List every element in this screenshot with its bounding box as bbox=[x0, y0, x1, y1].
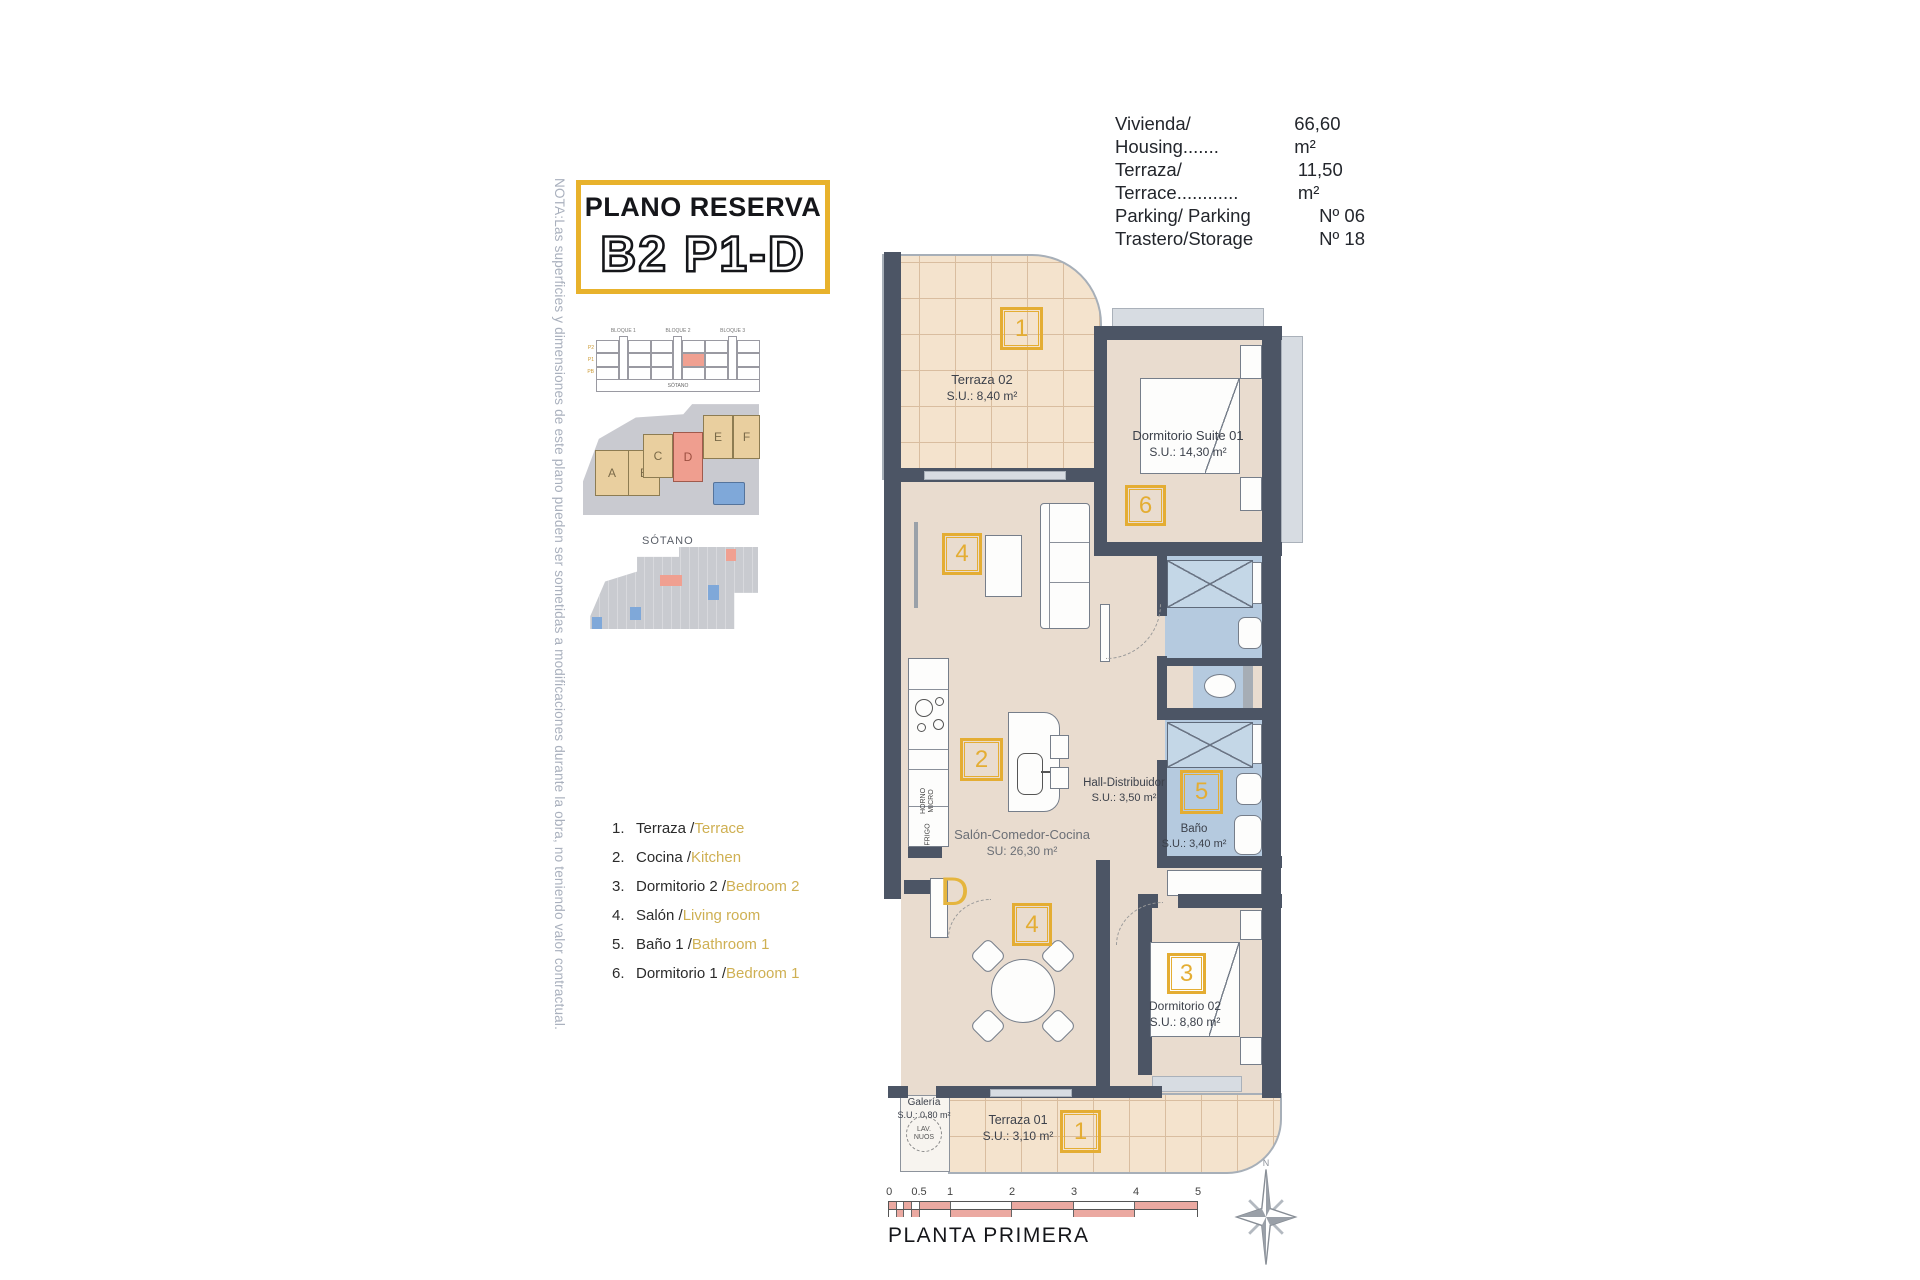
wall-suite-left bbox=[1094, 326, 1107, 556]
island-stool bbox=[1050, 767, 1069, 789]
site-unit-d-highlighted: D bbox=[673, 432, 703, 482]
basement-red-cell bbox=[726, 549, 736, 561]
exterior-gallery-band bbox=[1281, 336, 1303, 543]
compass-n-label: N bbox=[1226, 1158, 1306, 1168]
nightstand bbox=[1240, 1037, 1262, 1065]
highlighted-unit-cell bbox=[682, 353, 705, 366]
dining-table bbox=[991, 959, 1055, 1023]
cooktop-burner-large bbox=[915, 699, 933, 717]
stair-core bbox=[728, 336, 737, 380]
plan-title: B2 P1-D bbox=[600, 225, 806, 283]
basement-blue-cell bbox=[630, 607, 641, 620]
bath-sink bbox=[1238, 617, 1262, 649]
basement-label: SÓTANO bbox=[642, 535, 694, 547]
site-unit-a: A bbox=[595, 450, 629, 496]
scale-tick: 0 bbox=[886, 1186, 892, 1198]
wc-partition bbox=[1243, 666, 1253, 708]
label-hall: Hall-Distribuidor S.U.: 3,50 m² bbox=[1083, 776, 1165, 806]
island-stool bbox=[1050, 735, 1069, 759]
room-tag-bath: 5 bbox=[1180, 770, 1223, 814]
wall-left bbox=[884, 252, 901, 899]
wall-entry-stub bbox=[904, 880, 932, 894]
wall-dining-right bbox=[1096, 860, 1110, 1086]
basement-highlight-cell bbox=[660, 575, 682, 586]
scale-tick: 5 bbox=[1195, 1186, 1201, 1198]
compass-rose: N bbox=[1226, 1158, 1306, 1268]
scale-tick: 3 bbox=[1071, 1186, 1077, 1198]
info-label: Terraza/ Terrace............ bbox=[1115, 158, 1298, 204]
fridge-label: FRIGO bbox=[925, 820, 932, 850]
bath-fixture bbox=[1234, 815, 1262, 855]
wall-bath-bottom bbox=[1157, 856, 1282, 868]
wall-suite-bottom bbox=[1094, 542, 1282, 556]
wall-right-outer bbox=[1262, 326, 1281, 1098]
info-value: Nº 18 bbox=[1319, 227, 1365, 250]
site-unit-e: E bbox=[703, 415, 733, 459]
floor-caption: PLANTA PRIMERA bbox=[888, 1224, 1090, 1248]
sotano-band: SÓTANO bbox=[596, 380, 760, 392]
site-unit-c: C bbox=[643, 434, 673, 478]
shower-screen bbox=[1252, 724, 1262, 764]
info-row-housing: Vivienda/ Housing....... 66,60 m² bbox=[1115, 112, 1365, 158]
shower bbox=[1167, 722, 1253, 768]
info-row-terrace: Terraza/ Terrace............ 11,50 m² bbox=[1115, 158, 1365, 204]
nightstand bbox=[1240, 910, 1262, 940]
info-label: Trastero/Storage bbox=[1115, 227, 1253, 250]
title-block: PLANO RESERVA B2 P1-D bbox=[576, 180, 830, 294]
info-label: Parking/ Parking bbox=[1115, 204, 1251, 227]
cooktop-burner bbox=[935, 697, 944, 706]
legend-item-2: 2.Cocina / Kitchen bbox=[612, 849, 832, 878]
floorplan-sheet: NOTA:Las superficies y dimensiones de es… bbox=[0, 0, 1920, 1280]
room-tag-living: 4 bbox=[942, 533, 982, 575]
building-elevation-diagram: BLOQUE 1 BLOQUE 2 BLOQUE 3 P2 P1 PB SÓTA… bbox=[596, 328, 760, 404]
bloque-1-label: BLOQUE 1 bbox=[611, 328, 636, 336]
scale-bar-strip bbox=[888, 1201, 1198, 1217]
wall-wc-top bbox=[1165, 658, 1262, 666]
pool bbox=[713, 482, 745, 505]
basement-blue-cell bbox=[592, 617, 602, 629]
label-suite: Dormitorio Suite 01 S.U.: 14,30 m² bbox=[1132, 428, 1243, 460]
room-tag-dining: 4 bbox=[1012, 903, 1052, 946]
scale-tick: 1 bbox=[947, 1186, 953, 1198]
scale-tick: 2 bbox=[1009, 1186, 1015, 1198]
legend-item-3: 3.Dormitorio 2 / Bedroom 2 bbox=[612, 878, 832, 907]
plan-subtitle: PLANO RESERVA bbox=[585, 192, 822, 223]
room-tag-terraza02: 1 bbox=[1000, 307, 1043, 350]
site-unit-f: F bbox=[733, 415, 760, 459]
basement-plan-diagram: SÓTANO bbox=[590, 533, 758, 629]
label-terraza01: Terraza 01 S.U.: 3,10 m² bbox=[983, 1112, 1054, 1144]
bath-sink bbox=[1236, 773, 1262, 805]
wall-suite-top bbox=[1094, 326, 1282, 340]
cooktop-burner bbox=[933, 719, 944, 730]
info-value: 66,60 m² bbox=[1294, 112, 1365, 158]
nightstand bbox=[1240, 345, 1262, 379]
area-info-table: Vivienda/ Housing....... 66,60 m² Terraz… bbox=[1115, 112, 1365, 250]
info-row-storage: Trastero/Storage Nº 18 bbox=[1115, 227, 1365, 250]
bloque-2-label: BLOQUE 2 bbox=[665, 328, 690, 336]
room-tag-suite: 6 bbox=[1125, 485, 1166, 526]
washing-machine: LAV. NUOS bbox=[906, 1116, 942, 1152]
info-label: Vivienda/ Housing....... bbox=[1115, 112, 1294, 158]
label-salon: Salón-Comedor-Cocina SU: 26,30 m² bbox=[954, 827, 1090, 859]
closet bbox=[1167, 870, 1262, 896]
oven-label: HORNO bbox=[920, 786, 928, 816]
room-terraza-02 bbox=[882, 254, 1102, 480]
label-galeria: Galería S.U.: 0,80 m² bbox=[897, 1097, 950, 1121]
info-row-parking: Parking/ Parking Nº 06 bbox=[1115, 204, 1365, 227]
info-value: Nº 06 bbox=[1319, 204, 1365, 227]
wall-dorm02-top-b bbox=[1178, 894, 1282, 908]
cooktop-burner bbox=[917, 723, 926, 732]
info-value: 11,50 m² bbox=[1298, 158, 1365, 204]
scale-bar: 0 0.5 1 2 3 4 5 bbox=[888, 1186, 1198, 1220]
entry-door-label: D bbox=[940, 870, 969, 915]
legend-item-1: 1.Terraza / Terrace bbox=[612, 820, 832, 849]
floor-labels: P2 P1 PB bbox=[584, 342, 594, 378]
apartment-floor-plan: D HORNO MICRO bbox=[878, 250, 1314, 1175]
nightstand bbox=[1240, 477, 1262, 511]
sliding-door-band bbox=[924, 471, 1066, 480]
disclaimer-note: NOTA:Las superficies y dimensiones de es… bbox=[552, 178, 567, 1058]
kitchen-counter: HORNO MICRO FRIGO bbox=[908, 658, 949, 847]
toilet bbox=[1204, 674, 1236, 698]
room-legend: 1.Terraza / Terrace 2.Cocina / Kitchen 3… bbox=[612, 820, 832, 994]
room-tag-kitchen: 2 bbox=[960, 738, 1003, 781]
room-tag-dorm02: 3 bbox=[1167, 953, 1206, 994]
room-tag-terraza01: 1 bbox=[1060, 1110, 1101, 1153]
shower-screen bbox=[1252, 562, 1262, 604]
stair-core bbox=[673, 336, 682, 380]
label-bano: Baño S.U.: 3,40 m² bbox=[1162, 822, 1227, 852]
kitchen-island bbox=[1008, 712, 1060, 812]
compass-rose-icon bbox=[1226, 1168, 1306, 1266]
scale-tick: 4 bbox=[1133, 1186, 1139, 1198]
label-dorm02: Dormitorio 02 S.U.: 8,80 m² bbox=[1149, 998, 1221, 1030]
wall-wc-bottom bbox=[1165, 708, 1262, 720]
island-sink bbox=[1017, 753, 1043, 795]
legend-item-4: 4.Salón / Living room bbox=[612, 907, 832, 936]
coffee-table bbox=[985, 535, 1022, 597]
terrace01-door-band bbox=[990, 1089, 1072, 1097]
legend-item-5: 5.Baño 1 / Bathroom 1 bbox=[612, 936, 832, 965]
legend-item-6: 6.Dormitorio 1 /Bedroom 1 bbox=[612, 965, 832, 994]
scale-tick: 0.5 bbox=[911, 1186, 926, 1198]
stair-core bbox=[619, 336, 628, 380]
label-terraza02: Terraza 02 S.U.: 8,40 m² bbox=[947, 372, 1018, 404]
shower bbox=[1167, 560, 1253, 608]
wall-shelf bbox=[914, 522, 918, 608]
basement-blue-cell bbox=[708, 585, 719, 600]
site-plan-diagram: A B C D E F bbox=[583, 403, 759, 515]
sofa bbox=[1040, 503, 1090, 629]
bloque-3-label: BLOQUE 3 bbox=[720, 328, 745, 336]
micro-label: MICRO bbox=[928, 786, 936, 816]
dorm02-window-band bbox=[1152, 1076, 1242, 1092]
